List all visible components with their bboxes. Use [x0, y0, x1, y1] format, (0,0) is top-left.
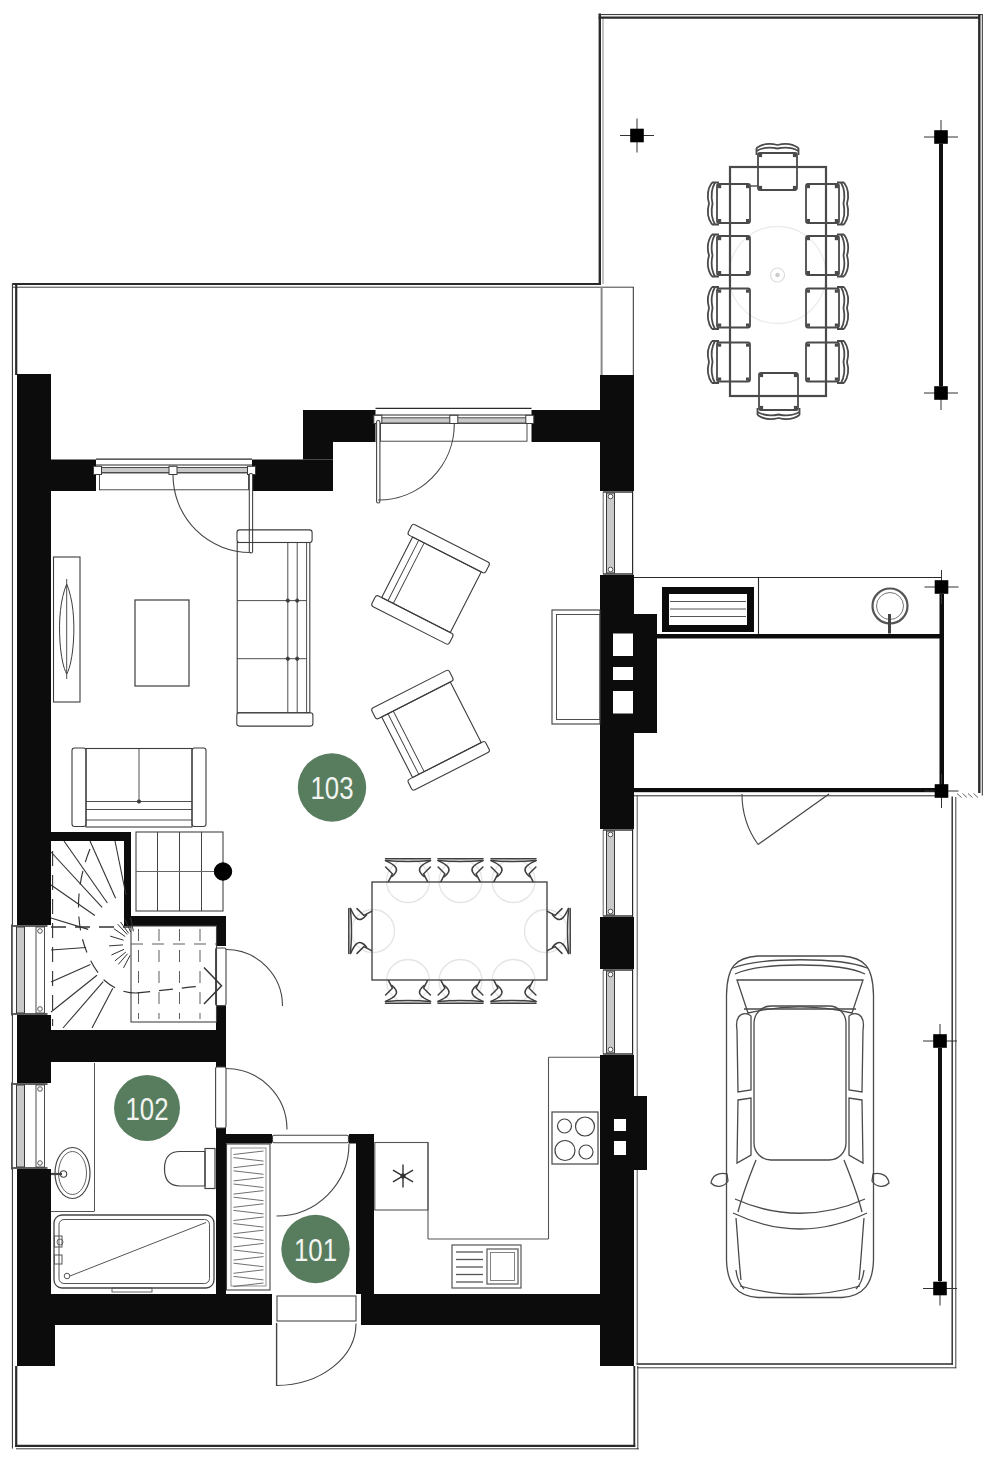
svg-text:101: 101: [294, 1232, 337, 1268]
svg-text:102: 102: [126, 1091, 169, 1127]
svg-text:103: 103: [311, 770, 354, 806]
